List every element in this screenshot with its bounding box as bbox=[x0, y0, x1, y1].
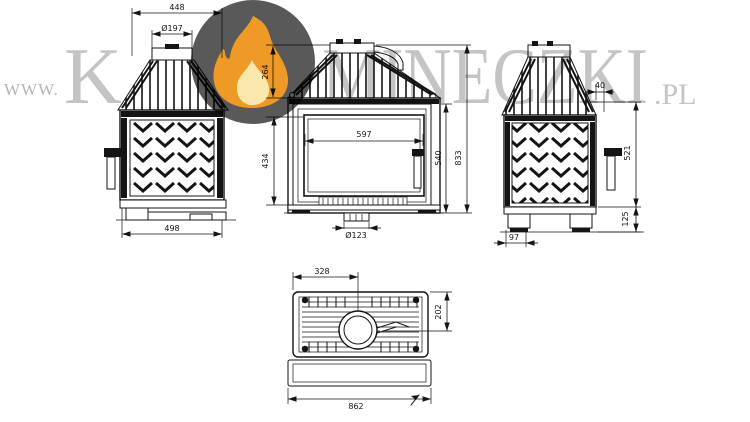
watermark: WWW. K MINECZKI .PL bbox=[4, 0, 697, 124]
dim-label-498: 498 bbox=[164, 224, 179, 233]
bottom-base-plate bbox=[288, 360, 431, 386]
dim-label-597: 597 bbox=[356, 130, 371, 139]
dim-base-height: 125 bbox=[598, 207, 641, 232]
watermark-minecki: MINECZKI bbox=[322, 33, 648, 121]
herringbone-panel-left bbox=[130, 120, 214, 196]
flame-logo bbox=[191, 0, 315, 124]
slope-tick bbox=[411, 395, 419, 405]
dim-label-862: 862 bbox=[348, 402, 363, 411]
dim-label-197: Ø197 bbox=[161, 23, 183, 33]
dim-label-123: Ø123 bbox=[345, 230, 367, 240]
technical-drawing-page: 448 Ø197 498 bbox=[0, 0, 750, 422]
bottom-view: 328 202 862 bbox=[288, 267, 452, 411]
dim-label-448: 448 bbox=[169, 3, 184, 12]
fireplace-technical-drawing: 448 Ø197 498 bbox=[0, 0, 750, 422]
watermark-letter-k: K bbox=[64, 33, 124, 121]
flue-opening-outer bbox=[339, 311, 377, 349]
body-right bbox=[504, 115, 596, 207]
dim-label-833: 833 bbox=[454, 150, 463, 165]
dim-label-434: 434 bbox=[261, 153, 270, 168]
glass-pane bbox=[304, 115, 424, 196]
base-left bbox=[116, 200, 236, 220]
flue-collar-left bbox=[165, 44, 179, 49]
dim-label-97: 97 bbox=[509, 233, 519, 242]
dim-label-125: 125 bbox=[621, 211, 630, 226]
dim-label-202: 202 bbox=[434, 304, 443, 319]
dim-leg-width: 97 bbox=[494, 230, 538, 247]
dim-total-width: 862 bbox=[288, 388, 431, 411]
air-inlet-spigot bbox=[344, 213, 369, 221]
door-handle-right bbox=[604, 148, 622, 190]
dim-label-328: 328 bbox=[314, 267, 329, 276]
watermark-www: WWW. bbox=[4, 80, 59, 99]
base-front bbox=[284, 205, 444, 221]
herringbone-panel-right bbox=[512, 123, 588, 203]
dim-label-521: 521 bbox=[623, 145, 632, 160]
dim-flue-offset-x: 328 bbox=[293, 267, 358, 290]
dim-air-inlet: Ø123 bbox=[332, 222, 381, 240]
dim-label-540: 540 bbox=[434, 150, 443, 165]
watermark-pl: .PL bbox=[654, 78, 697, 111]
body-left bbox=[120, 110, 224, 200]
